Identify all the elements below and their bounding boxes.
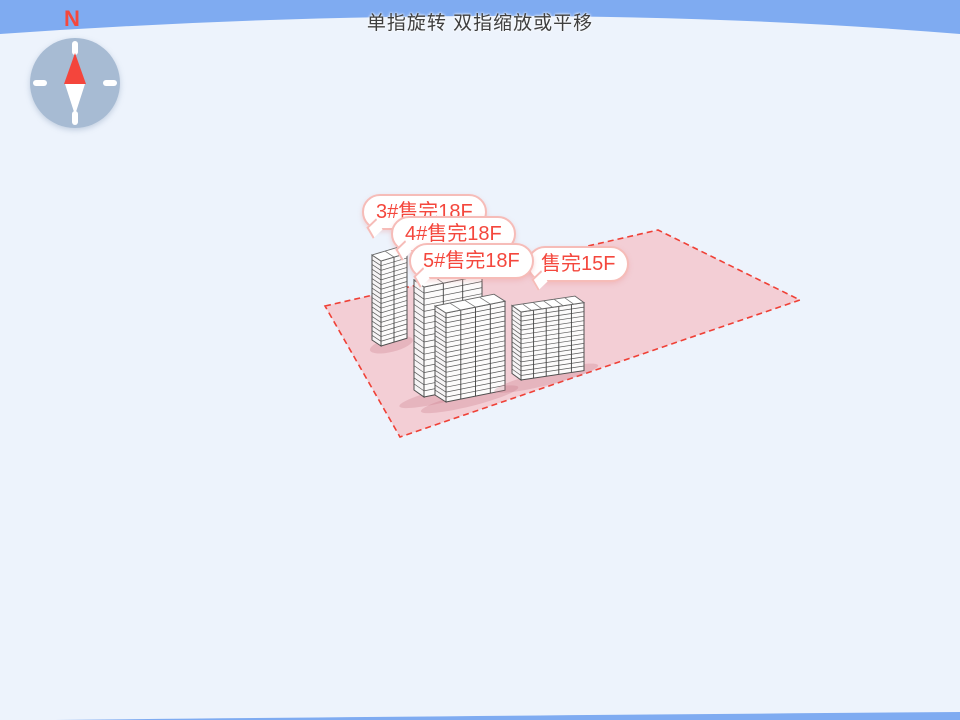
building-label-5[interactable]: 5#售完18F — [409, 243, 534, 279]
compass-needle-icon — [30, 38, 120, 128]
building-label-text: 售完15F — [541, 253, 615, 275]
building-front-face — [521, 303, 584, 380]
building-label-text: 5#售完18F — [423, 250, 520, 272]
compass[interactable] — [30, 38, 120, 128]
building-label-text: 4#售完18F — [405, 223, 502, 245]
scene-canvas[interactable] — [0, 0, 960, 720]
building-label-6[interactable]: 售完15F — [527, 246, 629, 282]
gesture-hint: 单指旋转 双指缩放或平移 — [0, 8, 960, 35]
north-label: N — [64, 6, 80, 32]
map-viewport: 单指旋转 双指缩放或平移 N 3#售完18F 4#售完18F 售完15F 5#售… — [0, 0, 960, 720]
